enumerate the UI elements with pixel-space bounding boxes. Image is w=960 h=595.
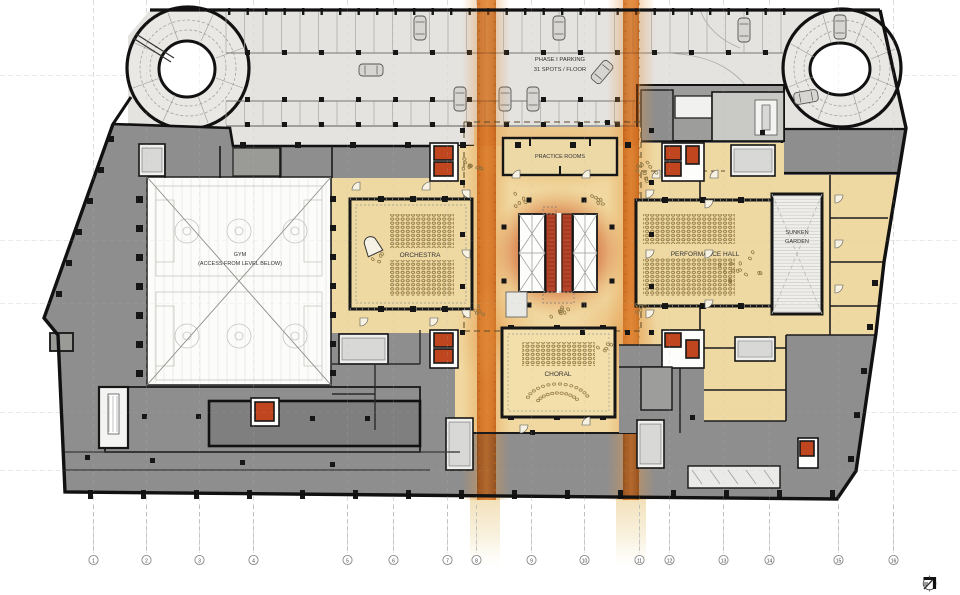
svg-text:5: 5: [346, 558, 349, 564]
svg-text:PHASE I PARKING: PHASE I PARKING: [535, 57, 586, 63]
svg-text:ORCHESTRA: ORCHESTRA: [400, 252, 441, 259]
svg-text:8: 8: [475, 558, 478, 564]
svg-text:15: 15: [836, 558, 842, 564]
svg-text:1: 1: [92, 558, 95, 564]
svg-text:3: 3: [198, 558, 201, 564]
svg-text:PRACTICE ROOMS: PRACTICE ROOMS: [535, 154, 585, 160]
svg-text:(ACCESS FROM LEVEL BELOW): (ACCESS FROM LEVEL BELOW): [198, 261, 282, 267]
svg-text:9: 9: [530, 558, 533, 564]
svg-text:6: 6: [392, 558, 395, 564]
svg-text:13: 13: [721, 558, 727, 564]
svg-text:10: 10: [582, 558, 588, 564]
svg-text:11: 11: [637, 558, 642, 564]
svg-text:2: 2: [145, 558, 148, 564]
svg-text:CHORAL: CHORAL: [544, 371, 571, 378]
svg-text:12: 12: [667, 558, 673, 564]
svg-text:7: 7: [446, 558, 449, 564]
svg-text:14: 14: [767, 558, 773, 564]
svg-text:4: 4: [252, 558, 255, 564]
svg-text:31 SPOTS / FLOOR: 31 SPOTS / FLOOR: [534, 67, 587, 73]
svg-text:16: 16: [891, 558, 897, 564]
svg-text:GYM: GYM: [234, 252, 247, 258]
svg-text:SUNKEN: SUNKEN: [785, 230, 808, 236]
svg-text:GARDEN: GARDEN: [785, 239, 809, 245]
